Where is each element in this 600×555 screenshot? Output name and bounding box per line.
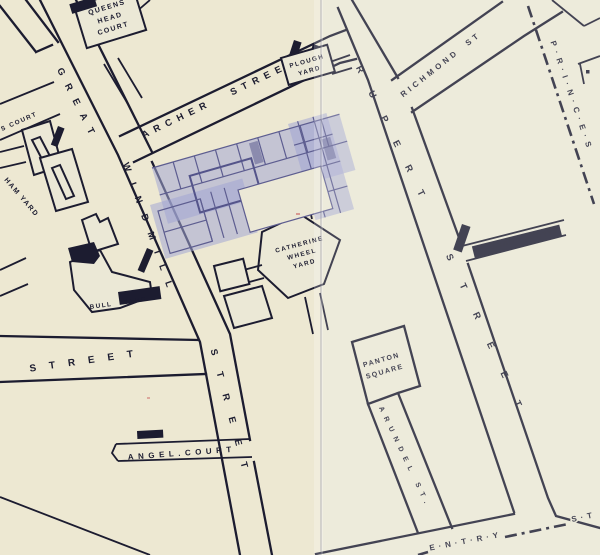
historical-street-map: GREAT WINDMILL STREET ARCHER STREET RICH… (0, 0, 600, 555)
red-speck-2 (147, 397, 150, 399)
map-canvas: GREAT WINDMILL STREET ARCHER STREET RICH… (0, 0, 600, 555)
red-speck (296, 213, 300, 215)
